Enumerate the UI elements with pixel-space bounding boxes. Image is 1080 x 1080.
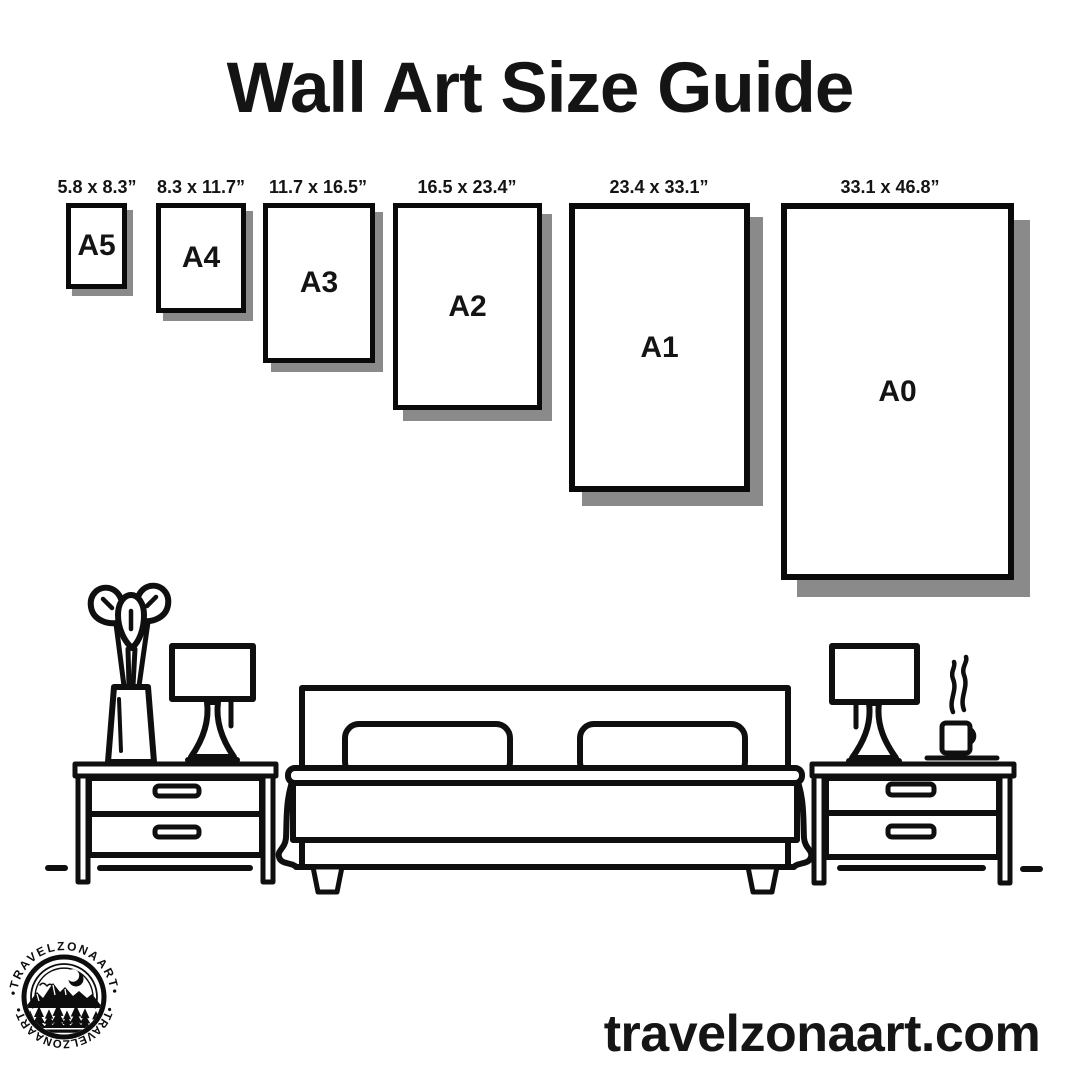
- bed-icon: [279, 688, 812, 892]
- bedroom-illustration: [0, 0, 1080, 1080]
- table-lamp-left-icon: [172, 646, 253, 760]
- steam-icon: [963, 657, 967, 710]
- plant-icon: [91, 586, 169, 762]
- nightstand-right: [812, 764, 1014, 883]
- travelzonaart-logo: •TRAVELZONAART• •TRAVELZONAART•: [4, 936, 126, 1058]
- website-url: travelzonaart.com: [604, 1004, 1041, 1064]
- nightstand-left: [75, 764, 276, 882]
- steam-icon: [952, 662, 955, 712]
- table-lamp-right-icon: [832, 646, 917, 761]
- coffee-cup-icon: [927, 657, 997, 758]
